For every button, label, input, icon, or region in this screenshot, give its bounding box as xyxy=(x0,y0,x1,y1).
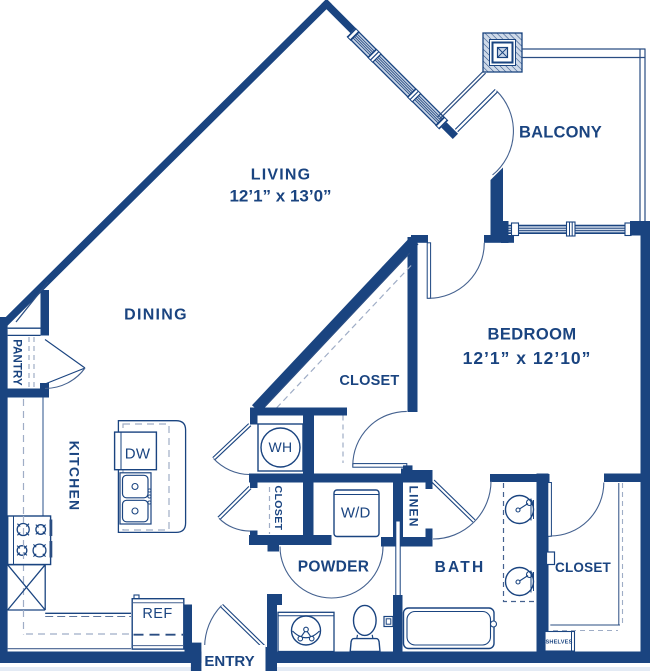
svg-text:BATH: BATH xyxy=(435,559,486,576)
svg-text:W/D: W/D xyxy=(341,505,371,522)
svg-text:CLOSET: CLOSET xyxy=(555,560,612,575)
svg-text:POWDER: POWDER xyxy=(298,559,370,576)
svg-text:WH: WH xyxy=(269,439,293,455)
svg-text:PANTRY: PANTRY xyxy=(11,339,23,386)
svg-text:LINEN: LINEN xyxy=(406,486,420,528)
svg-text:SHELVES: SHELVES xyxy=(545,640,572,646)
svg-text:KITCHEN: KITCHEN xyxy=(66,441,82,512)
svg-text:LIVING: LIVING xyxy=(251,167,312,184)
svg-text:ENTRY: ENTRY xyxy=(204,653,254,670)
svg-text:DW: DW xyxy=(125,446,151,463)
svg-text:CLOSET: CLOSET xyxy=(272,486,284,531)
svg-text:12’1” x 12’10”: 12’1” x 12’10” xyxy=(463,348,592,368)
svg-text:REF: REF xyxy=(142,606,172,622)
svg-text:BALCONY: BALCONY xyxy=(519,124,602,142)
svg-text:DINING: DINING xyxy=(124,307,188,324)
svg-text:12’1” x 13’0”: 12’1” x 13’0” xyxy=(229,187,331,206)
svg-text:CLOSET: CLOSET xyxy=(339,373,399,389)
svg-text:BEDROOM: BEDROOM xyxy=(488,326,577,344)
